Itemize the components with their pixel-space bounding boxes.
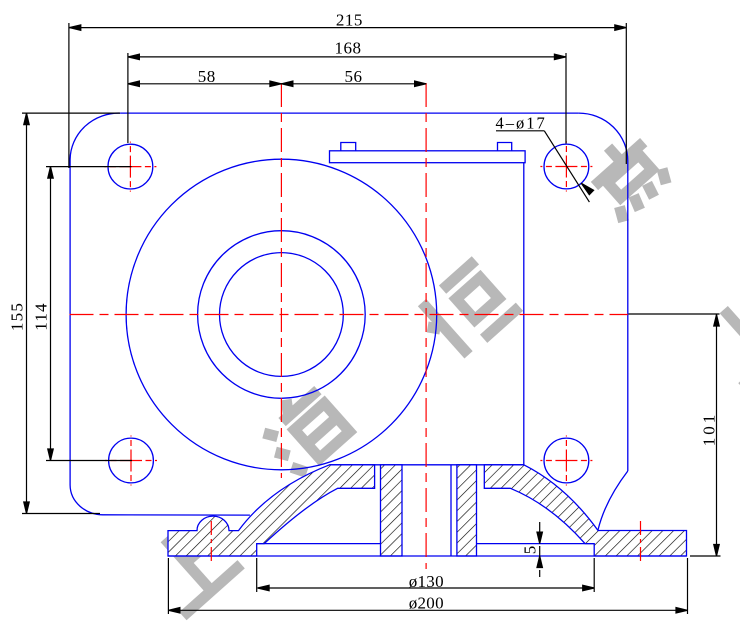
svg-text:168: 168 — [335, 39, 362, 58]
svg-text:155: 155 — [8, 302, 27, 331]
svg-text:ø200: ø200 — [409, 594, 444, 613]
svg-text:ø130: ø130 — [409, 572, 444, 591]
svg-text:5: 5 — [521, 546, 540, 555]
svg-text:56: 56 — [345, 67, 363, 86]
svg-text:101: 101 — [700, 412, 719, 447]
svg-text:4–ø17: 4–ø17 — [496, 114, 547, 133]
svg-text:58: 58 — [198, 67, 216, 86]
svg-text:215: 215 — [336, 11, 363, 30]
svg-text:114: 114 — [32, 302, 51, 330]
